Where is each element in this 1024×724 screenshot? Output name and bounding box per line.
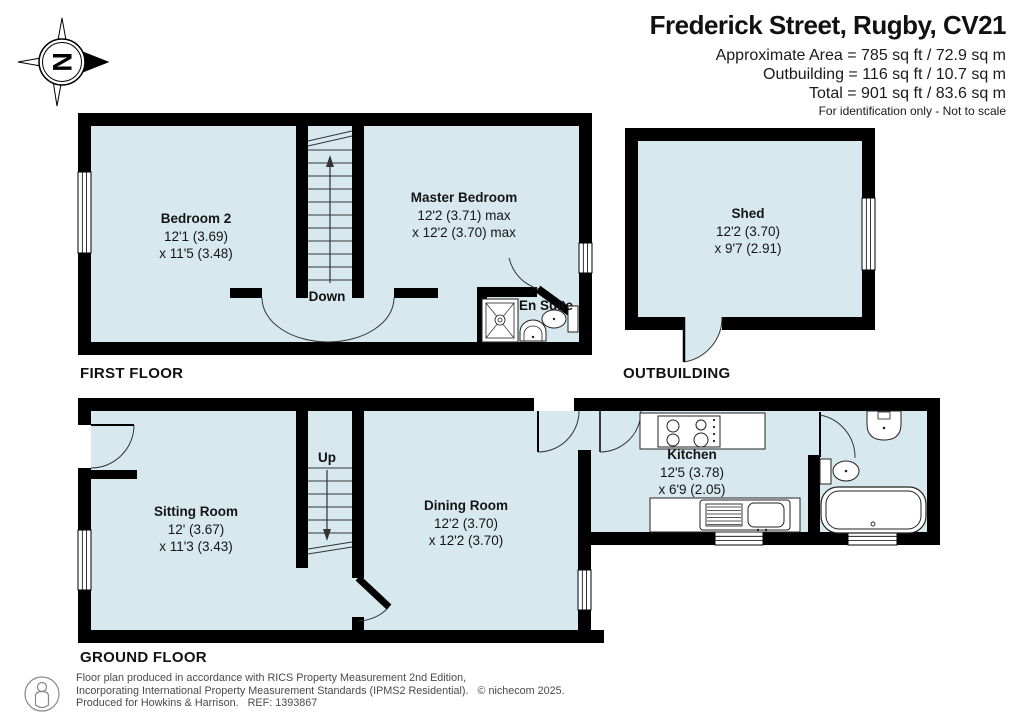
floorplan-page: N: [0, 0, 1024, 724]
room-name: Dining Room: [356, 497, 576, 515]
window: [715, 532, 763, 545]
room-dim: 12'2 (3.71) max: [354, 207, 574, 225]
room-dim: x 11'5 (3.48): [86, 245, 306, 263]
stairs-up-label: Up: [302, 450, 352, 465]
room-name: Bedroom 2: [86, 210, 306, 228]
approximate-area: Approximate Area = 785 sq ft / 72.9 sq m: [716, 47, 1006, 65]
person-icon: [25, 677, 59, 711]
sink-icon: [867, 411, 901, 440]
ground-floor-label: GROUND FLOOR: [80, 649, 207, 666]
room-label-kitchen: Kitchen 12'5 (3.78) x 6'9 (2.05): [582, 446, 802, 499]
stairs-down-label: Down: [292, 289, 362, 304]
room-dim: 12'1 (3.69): [86, 228, 306, 246]
outbuilding-area: Outbuilding = 116 sq ft / 10.7 sq m: [763, 66, 1006, 84]
room-dim: x 12'2 (3.70) max: [354, 224, 574, 242]
total-area: Total = 901 sq ft / 83.6 sq m: [809, 85, 1006, 103]
room-dim: x 12'2 (3.70): [356, 532, 576, 550]
room-label-dining-room: Dining Room 12'2 (3.70) x 12'2 (3.70): [356, 497, 576, 550]
sink-icon: [520, 320, 546, 341]
room-label-bedroom2: Bedroom 2 12'1 (3.69) x 11'5 (3.48): [86, 210, 306, 263]
hob-icon: [658, 416, 720, 447]
compass-rose: N: [18, 18, 108, 106]
disclaimer-note: For identification only - Not to scale: [819, 104, 1006, 118]
window: [862, 198, 875, 270]
footer-line-3: Produced for Howkins & Harrison. REF: 13…: [76, 697, 317, 709]
room-label-shed: Shed 12'2 (3.70) x 9'7 (2.91): [638, 205, 858, 258]
room-name: Sitting Room: [86, 503, 306, 521]
page-title: Frederick Street, Rugby, CV21: [650, 10, 1006, 41]
room-dim: x 11'3 (3.43): [86, 538, 306, 556]
room-dim: 12'2 (3.70): [356, 515, 576, 533]
bath-icon: [821, 487, 926, 533]
room-dim: 12'2 (3.70): [638, 223, 858, 241]
window: [848, 532, 897, 545]
room-label-master-bedroom: Master Bedroom 12'2 (3.71) max x 12'2 (3…: [354, 189, 574, 242]
room-dim: 12' (3.67): [86, 521, 306, 539]
outbuilding-label: OUTBUILDING: [623, 365, 730, 382]
window: [579, 243, 592, 273]
room-dim: x 6'9 (2.05): [582, 481, 802, 499]
first-floor-label: FIRST FLOOR: [80, 365, 183, 382]
room-label-sitting-room: Sitting Room 12' (3.67) x 11'3 (3.43): [86, 503, 306, 556]
footer-line-2: Incorporating International Property Mea…: [76, 685, 565, 697]
footer-line-1: Floor plan produced in accordance with R…: [76, 672, 466, 684]
room-dim: x 9'7 (2.91): [638, 240, 858, 258]
room-name: Kitchen: [582, 446, 802, 464]
room-name: Master Bedroom: [354, 189, 574, 207]
kitchen-sink-icon: [700, 500, 790, 531]
room-label-en-suite: En Suite: [500, 298, 592, 313]
room-dim: 12'5 (3.78): [582, 464, 802, 482]
window: [578, 570, 591, 610]
room-name: Shed: [638, 205, 858, 223]
compass-north-letter: N: [47, 52, 77, 72]
